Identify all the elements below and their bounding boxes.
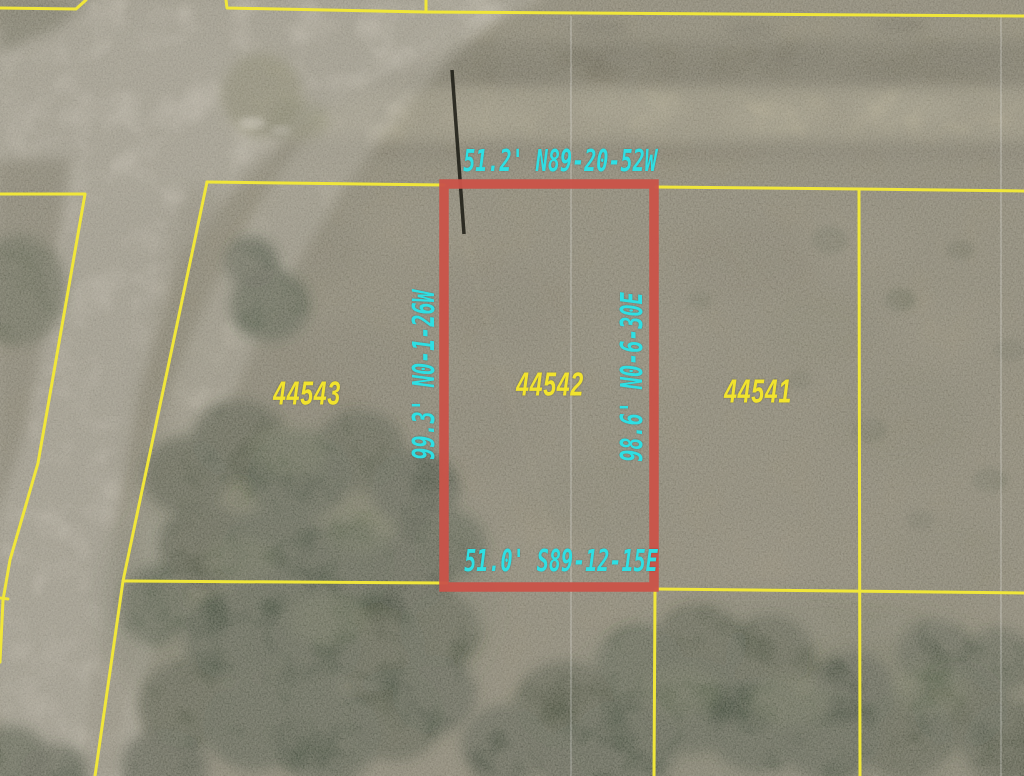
aerial-parcel-map[interactable]: 51.2' N89-20-52W 51.0' S89-12-15E 99.3' … bbox=[0, 0, 1024, 776]
light-grain-texture bbox=[0, 0, 1024, 776]
boundary-divider-south bbox=[654, 591, 655, 776]
aerial-imagery bbox=[0, 0, 1024, 776]
boundary-divider-east bbox=[859, 189, 860, 776]
boundary-south-west-segment bbox=[123, 581, 447, 583]
boundary-west-tick bbox=[0, 598, 8, 599]
